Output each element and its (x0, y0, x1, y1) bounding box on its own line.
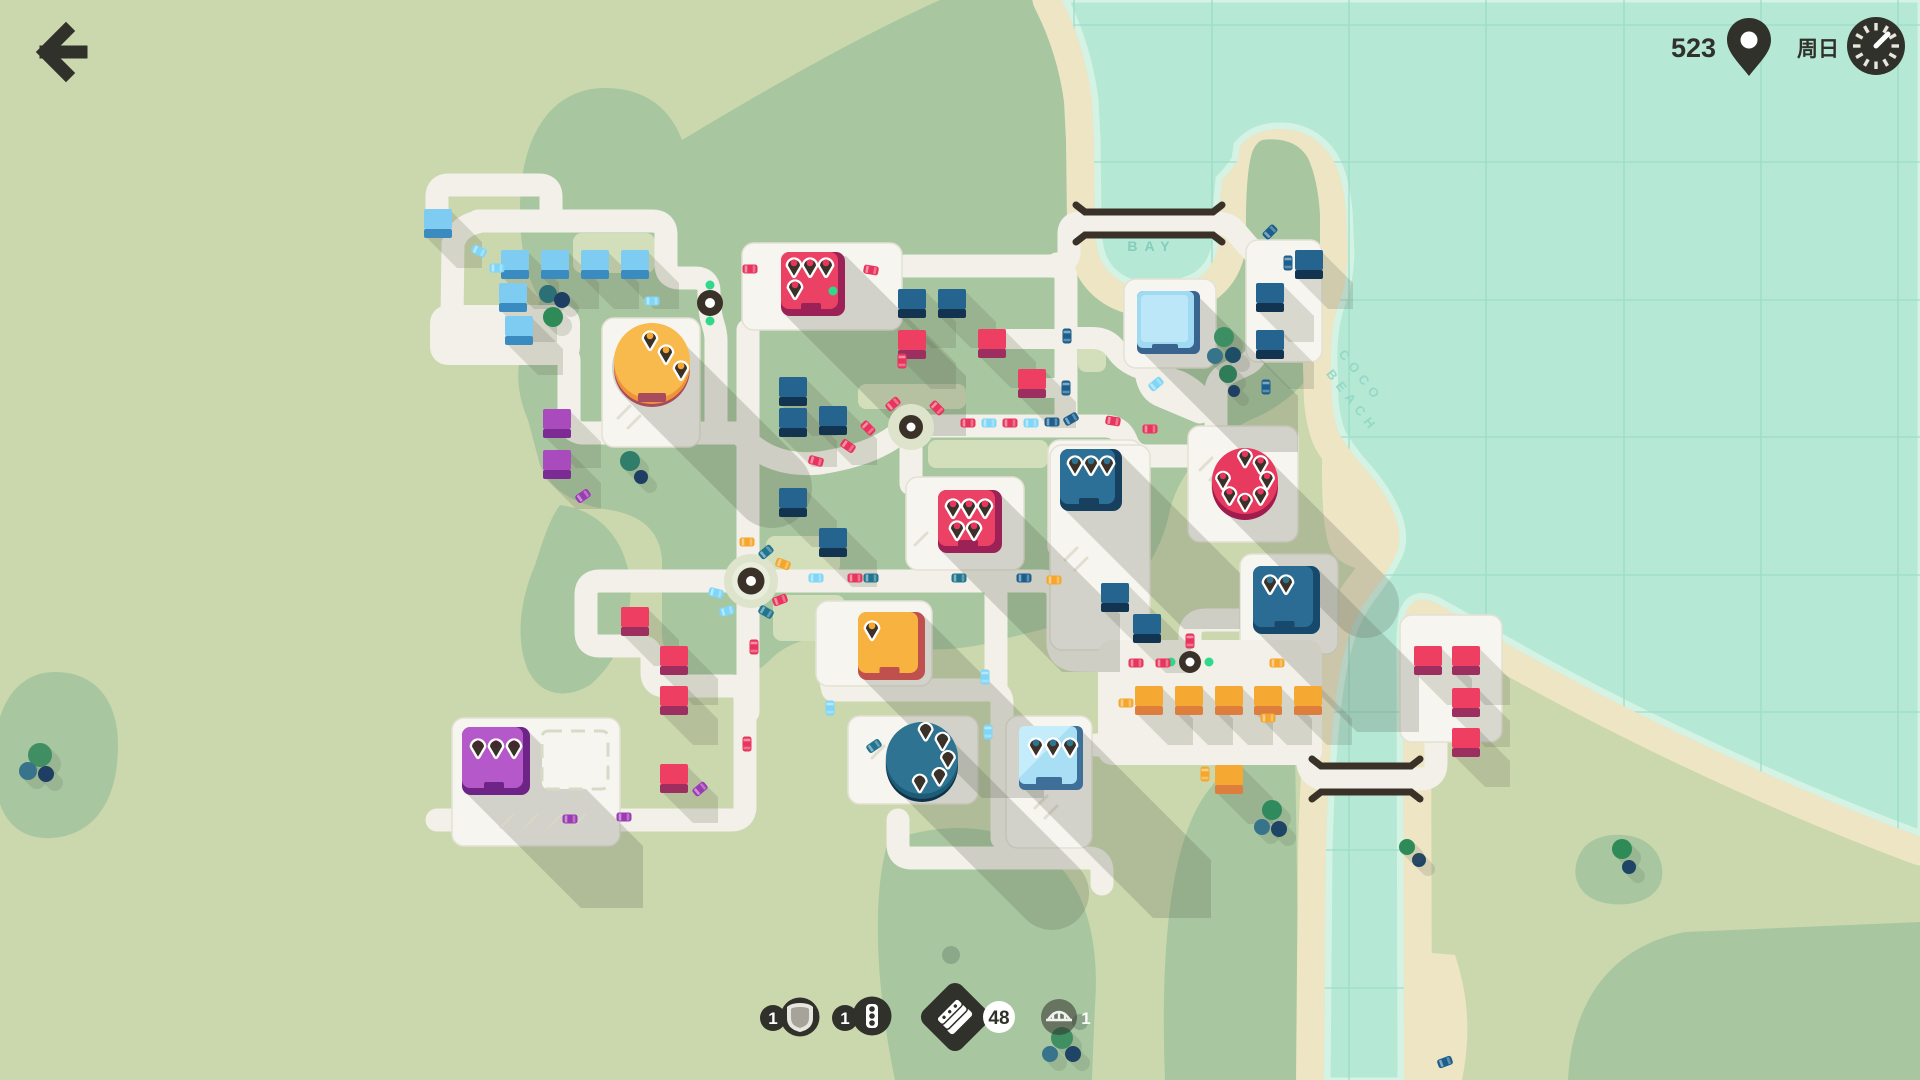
svg-text:BAY: BAY (1127, 238, 1176, 254)
svg-text:周日: 周日 (1797, 38, 1839, 61)
svg-text:523: 523 (1671, 33, 1716, 63)
svg-text:1: 1 (840, 1009, 849, 1028)
svg-text:48: 48 (988, 1008, 1009, 1029)
svg-text:1: 1 (1081, 1009, 1090, 1028)
svg-text:1: 1 (768, 1009, 777, 1028)
